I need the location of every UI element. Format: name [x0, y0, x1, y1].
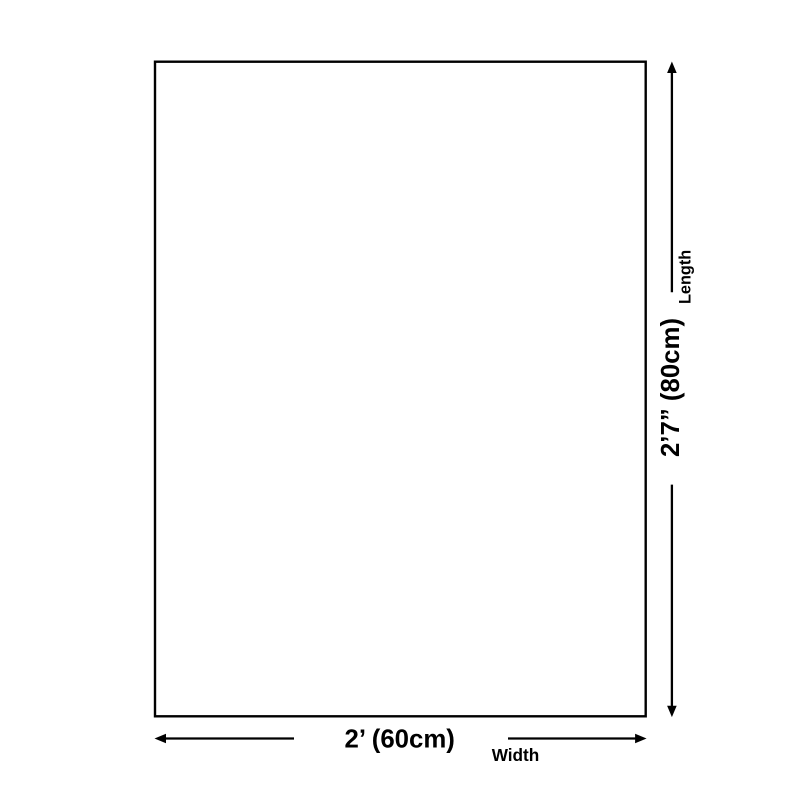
svg-text:Length: Length: [677, 250, 695, 304]
svg-text:2’ (60cm): 2’ (60cm): [344, 726, 454, 754]
svg-text:Width: Width: [492, 745, 540, 765]
svg-text:2’7” (80cm): 2’7” (80cm): [657, 318, 685, 457]
